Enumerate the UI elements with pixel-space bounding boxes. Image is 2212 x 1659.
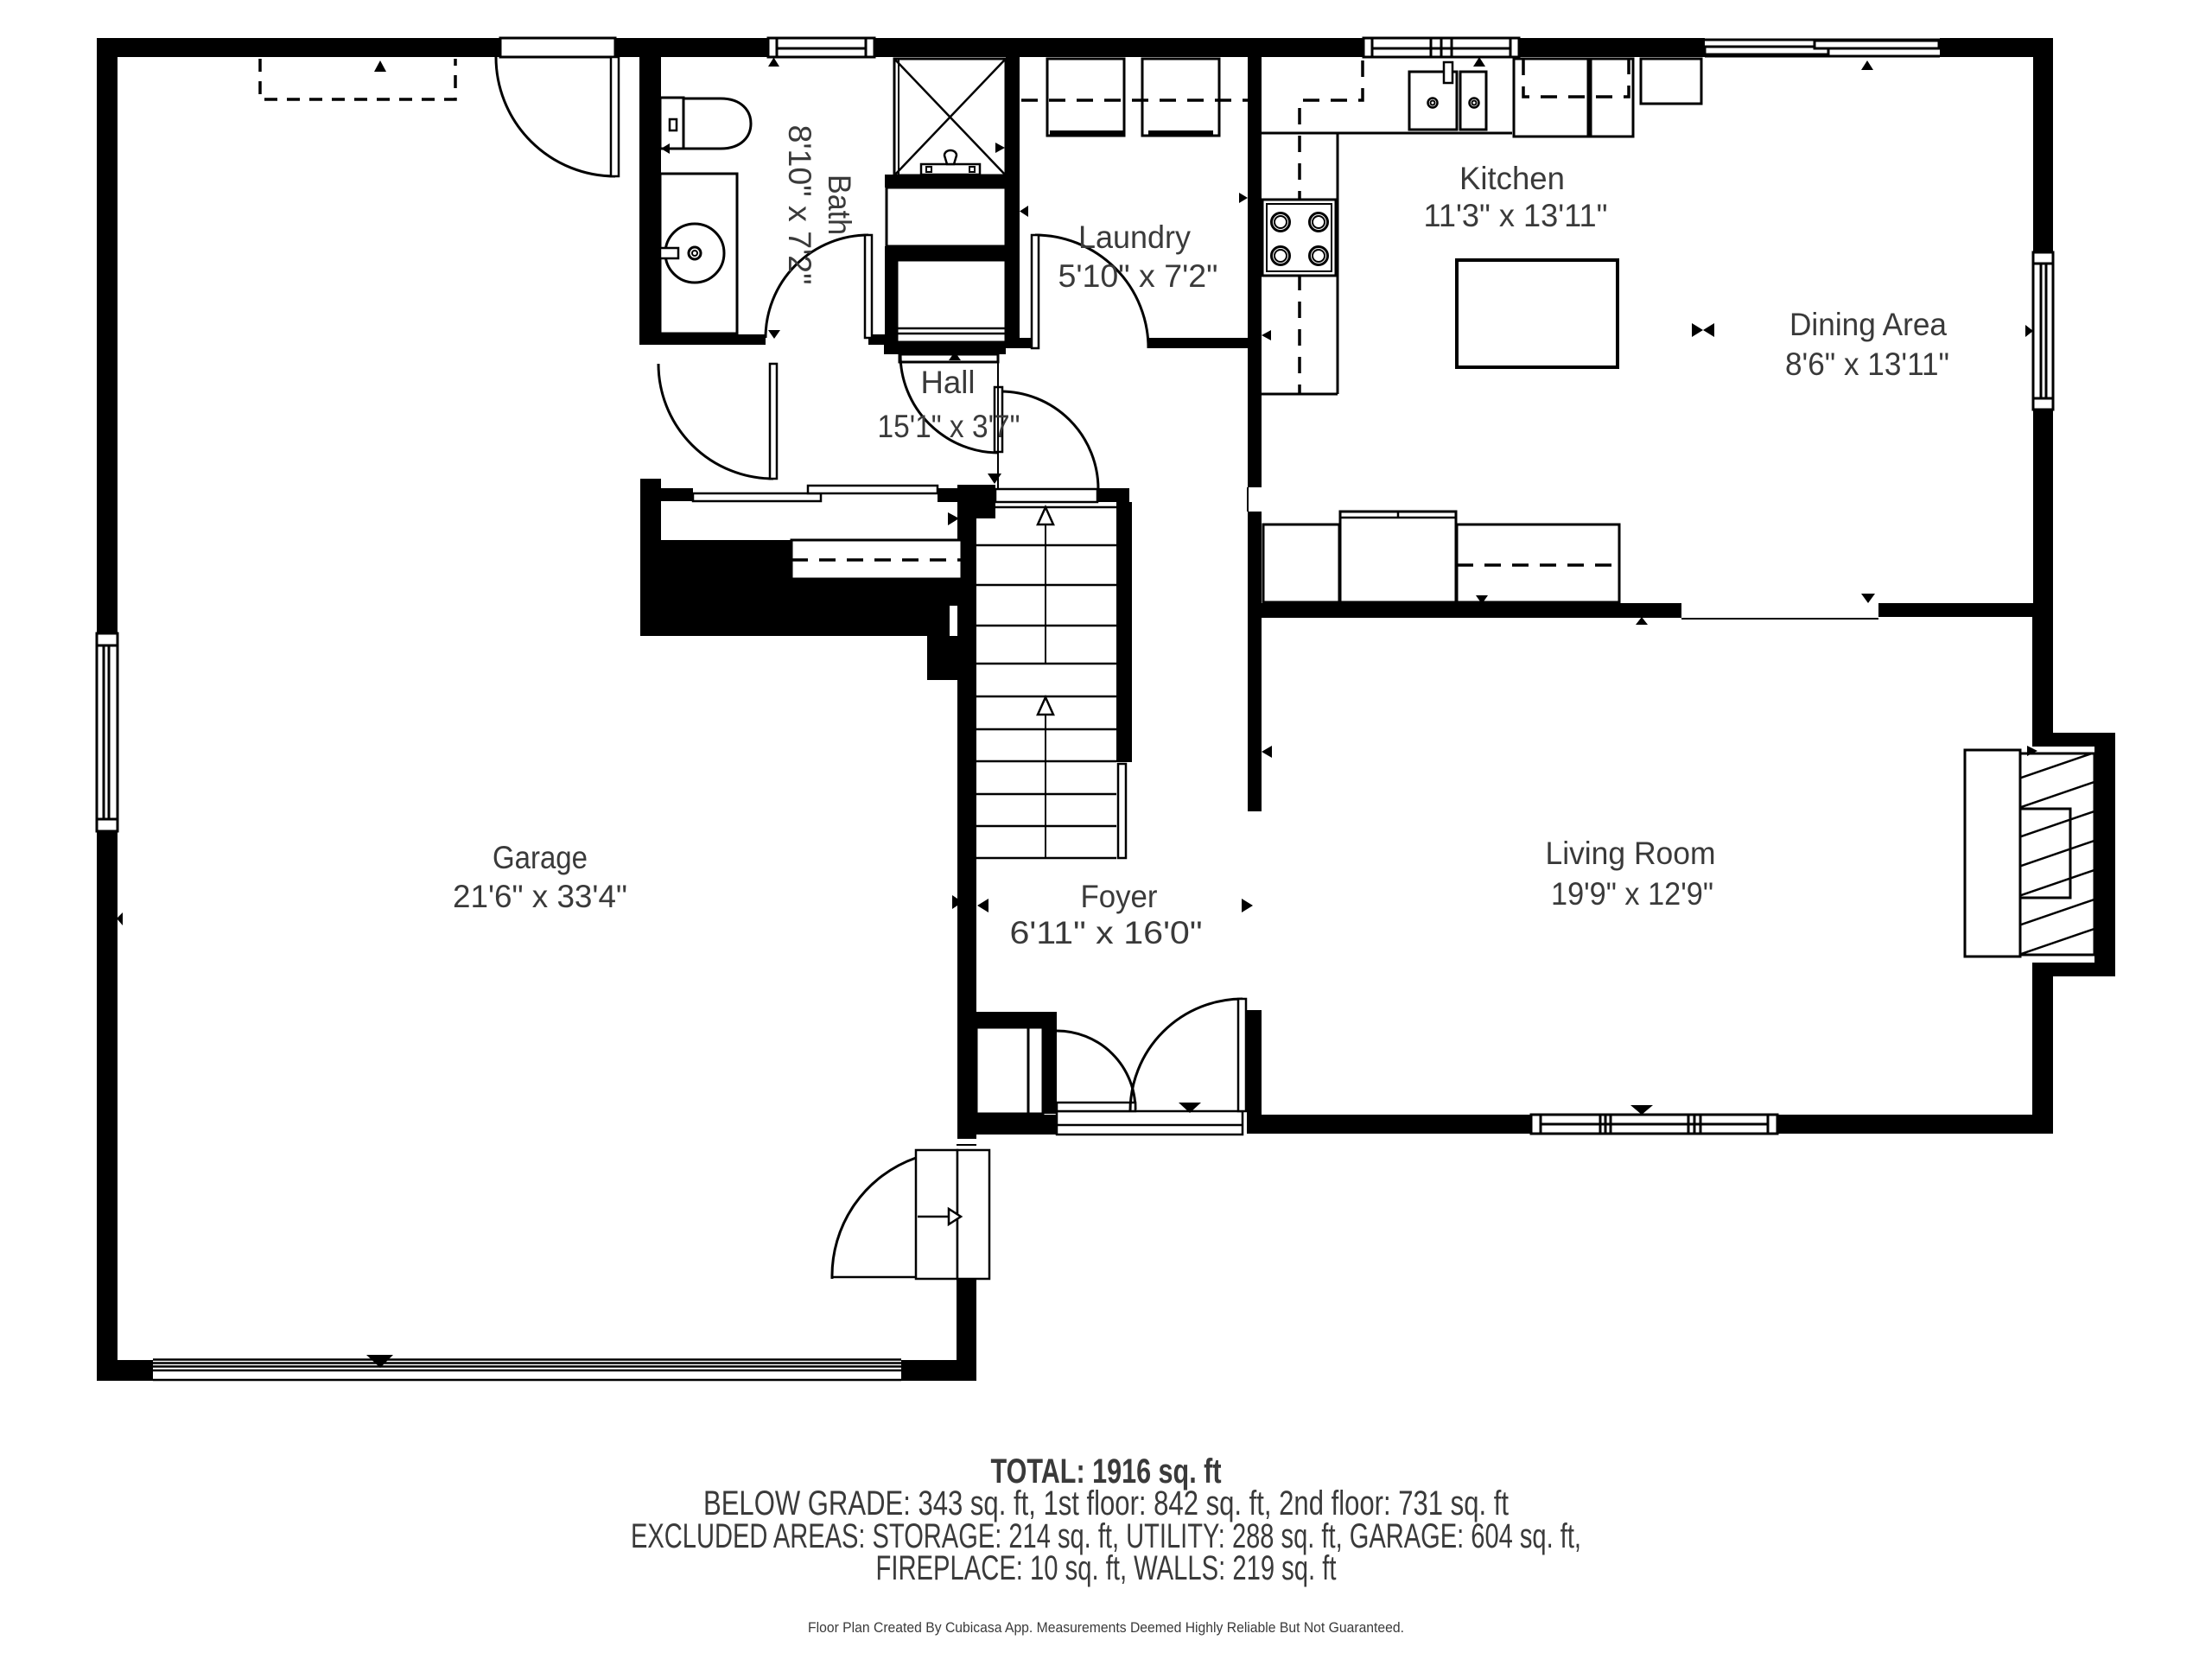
svg-text:5'10" x 7'2": 5'10" x 7'2" xyxy=(1058,258,1218,294)
svg-text:19'9" x 12'9": 19'9" x 12'9" xyxy=(1551,876,1713,912)
svg-text:Floor Plan Created By Cubicasa: Floor Plan Created By Cubicasa App. Meas… xyxy=(808,1619,1404,1636)
svg-text:Foyer: Foyer xyxy=(1081,879,1158,914)
svg-text:8'10" x 7'2": 8'10" x 7'2" xyxy=(782,125,817,285)
svg-text:Laundry: Laundry xyxy=(1078,219,1191,255)
svg-text:15'1" x 3'7": 15'1" x 3'7" xyxy=(878,409,1020,444)
svg-text:6'11" x 16'0": 6'11" x 16'0" xyxy=(1010,915,1203,950)
svg-text:FIREPLACE: 10 sq. ft, WALLS: 2: FIREPLACE: 10 sq. ft, WALLS: 219 sq. ft xyxy=(876,1549,1337,1587)
svg-text:Living Room: Living Room xyxy=(1546,836,1716,871)
svg-text:Kitchen: Kitchen xyxy=(1459,161,1565,196)
svg-text:Bath: Bath xyxy=(822,175,857,235)
svg-text:11'3" x 13'11": 11'3" x 13'11" xyxy=(1424,198,1608,233)
svg-text:Dining Area: Dining Area xyxy=(1789,307,1947,342)
svg-text:Hall: Hall xyxy=(921,365,976,400)
svg-text:8'6" x 13'11": 8'6" x 13'11" xyxy=(1785,346,1949,382)
svg-text:Garage: Garage xyxy=(493,840,588,875)
svg-text:21'6" x 33'4": 21'6" x 33'4" xyxy=(453,879,627,914)
